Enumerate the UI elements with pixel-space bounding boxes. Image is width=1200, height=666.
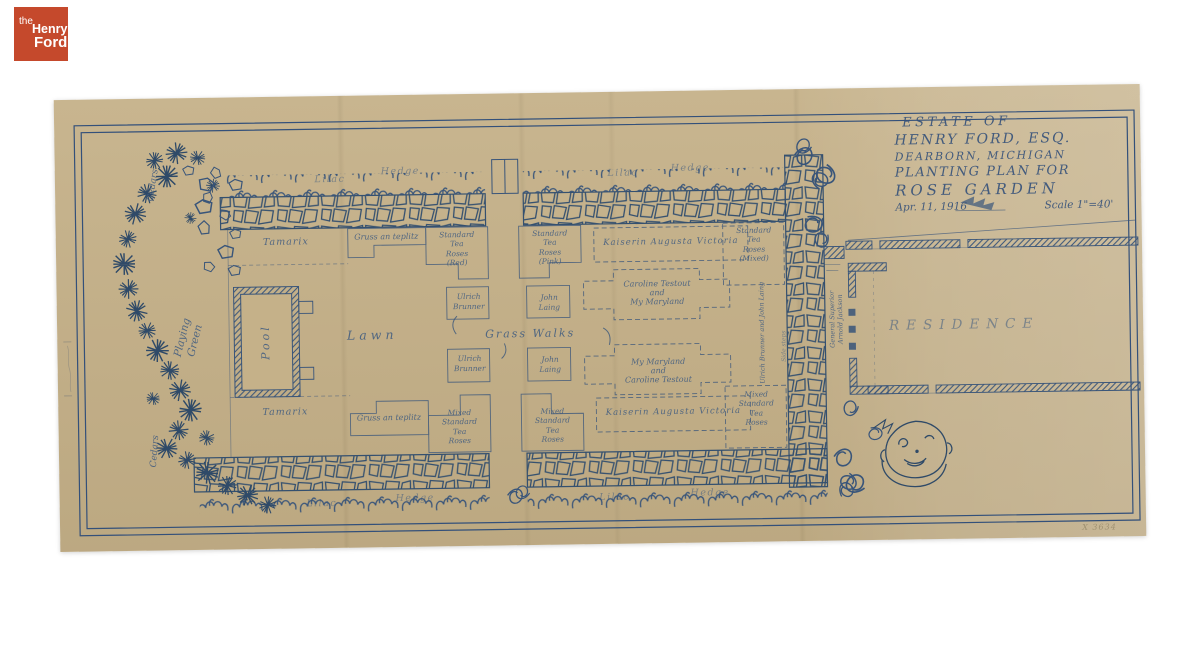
label-hedge-br-lilac: Lilac [590, 491, 640, 504]
label-hedge-bl-lilac: Lilac [297, 498, 347, 511]
logo-text-ford: Ford [34, 35, 67, 50]
pool [234, 286, 315, 397]
bed-label-standard-pink: Standard Tea Roses (Pink) [520, 228, 581, 266]
pencil-annotation: X 3634 [1082, 522, 1117, 532]
label-tamarix-bottom: Tamarix [240, 406, 330, 420]
label-lawn: Lawn [332, 327, 412, 344]
bed-label-standard-red: Standard Tea Roses (Red) [427, 230, 488, 268]
title-line-estate: ESTATE OF [902, 112, 1139, 131]
bed-label-gruss-bottom: Gruss an teplitz [346, 413, 431, 425]
scanned-archive-page: { "logo": { "word_the": "the", "word_hen… [0, 0, 1200, 666]
title-line-henry-ford: HENRY FORD, ESQ. [894, 129, 1139, 149]
paper-marks [63, 342, 72, 396]
label-hedge-bl-hedge: Hedge [388, 492, 443, 505]
title-date: Apr. 11, 1916 [895, 201, 967, 214]
bed-label-john-upper: John Laing [528, 292, 571, 312]
label-hedge-tl-hedge: Hedge [373, 166, 428, 179]
face-doodle [874, 419, 953, 487]
bed-label-john-lower: John Laing [529, 354, 572, 374]
title-line-rose-garden: ROSE GARDEN [895, 178, 1140, 200]
bed-label-standard-mixed: Standard Tea Roses (Mixed) [724, 225, 785, 263]
label-residence: RESIDENCE [869, 315, 1059, 335]
henry-ford-logo: the Henry Ford [14, 7, 68, 61]
wall-steps [824, 246, 844, 270]
bed-label-mixed-right: Mixed Standard Tea Roses [726, 389, 787, 427]
label-hedge-tr-lilac: Lilac [598, 167, 648, 180]
label-hedge-br-hedge: Hedge [683, 487, 738, 500]
title-block: ESTATE OF HENRY FORD, ESQ. DEARBORN, MIC… [894, 112, 1140, 214]
label-pool: Pool [259, 307, 274, 377]
label-porch-note: General Superior Arnold Jackson [829, 279, 846, 359]
label-grass-walks: Grass Walks [465, 326, 595, 342]
bed-label-gruss-top: Gruss an teplitz [344, 232, 429, 244]
bed-label-testout-lower: My Maryland and Caroline Testout [591, 356, 726, 386]
label-hedge-tl-lilac: Lilac [305, 174, 355, 187]
label-hedge-tr-hedge: Hedge [663, 162, 718, 175]
logo-text-the: the [19, 17, 33, 27]
bed-label-ulrich-lower: Ulrich Brunner [449, 354, 491, 374]
label-wall-note: Side steps [780, 316, 789, 376]
title-line-dearborn: DEARBORN, MICHIGAN [895, 147, 1140, 164]
bed-label-testout-upper: Caroline Testout and My Maryland [589, 278, 724, 308]
bed-label-mixed-b: Mixed Standard Tea Roses [522, 406, 583, 444]
bed-label-mixed-a: Mixed Standard Tea Roses [429, 408, 490, 446]
bed-label-ulrich-upper: Ulrich Brunner [448, 292, 490, 312]
title-scale: Scale 1"=40' [1044, 198, 1113, 211]
blueprint-paper: ESTATE OF HENRY FORD, ESQ. DEARBORN, MIC… [54, 84, 1147, 552]
label-tamarix-top: Tamarix [241, 236, 331, 250]
label-climbing-roses: Ulrich Brunner and John Laing [757, 273, 767, 393]
